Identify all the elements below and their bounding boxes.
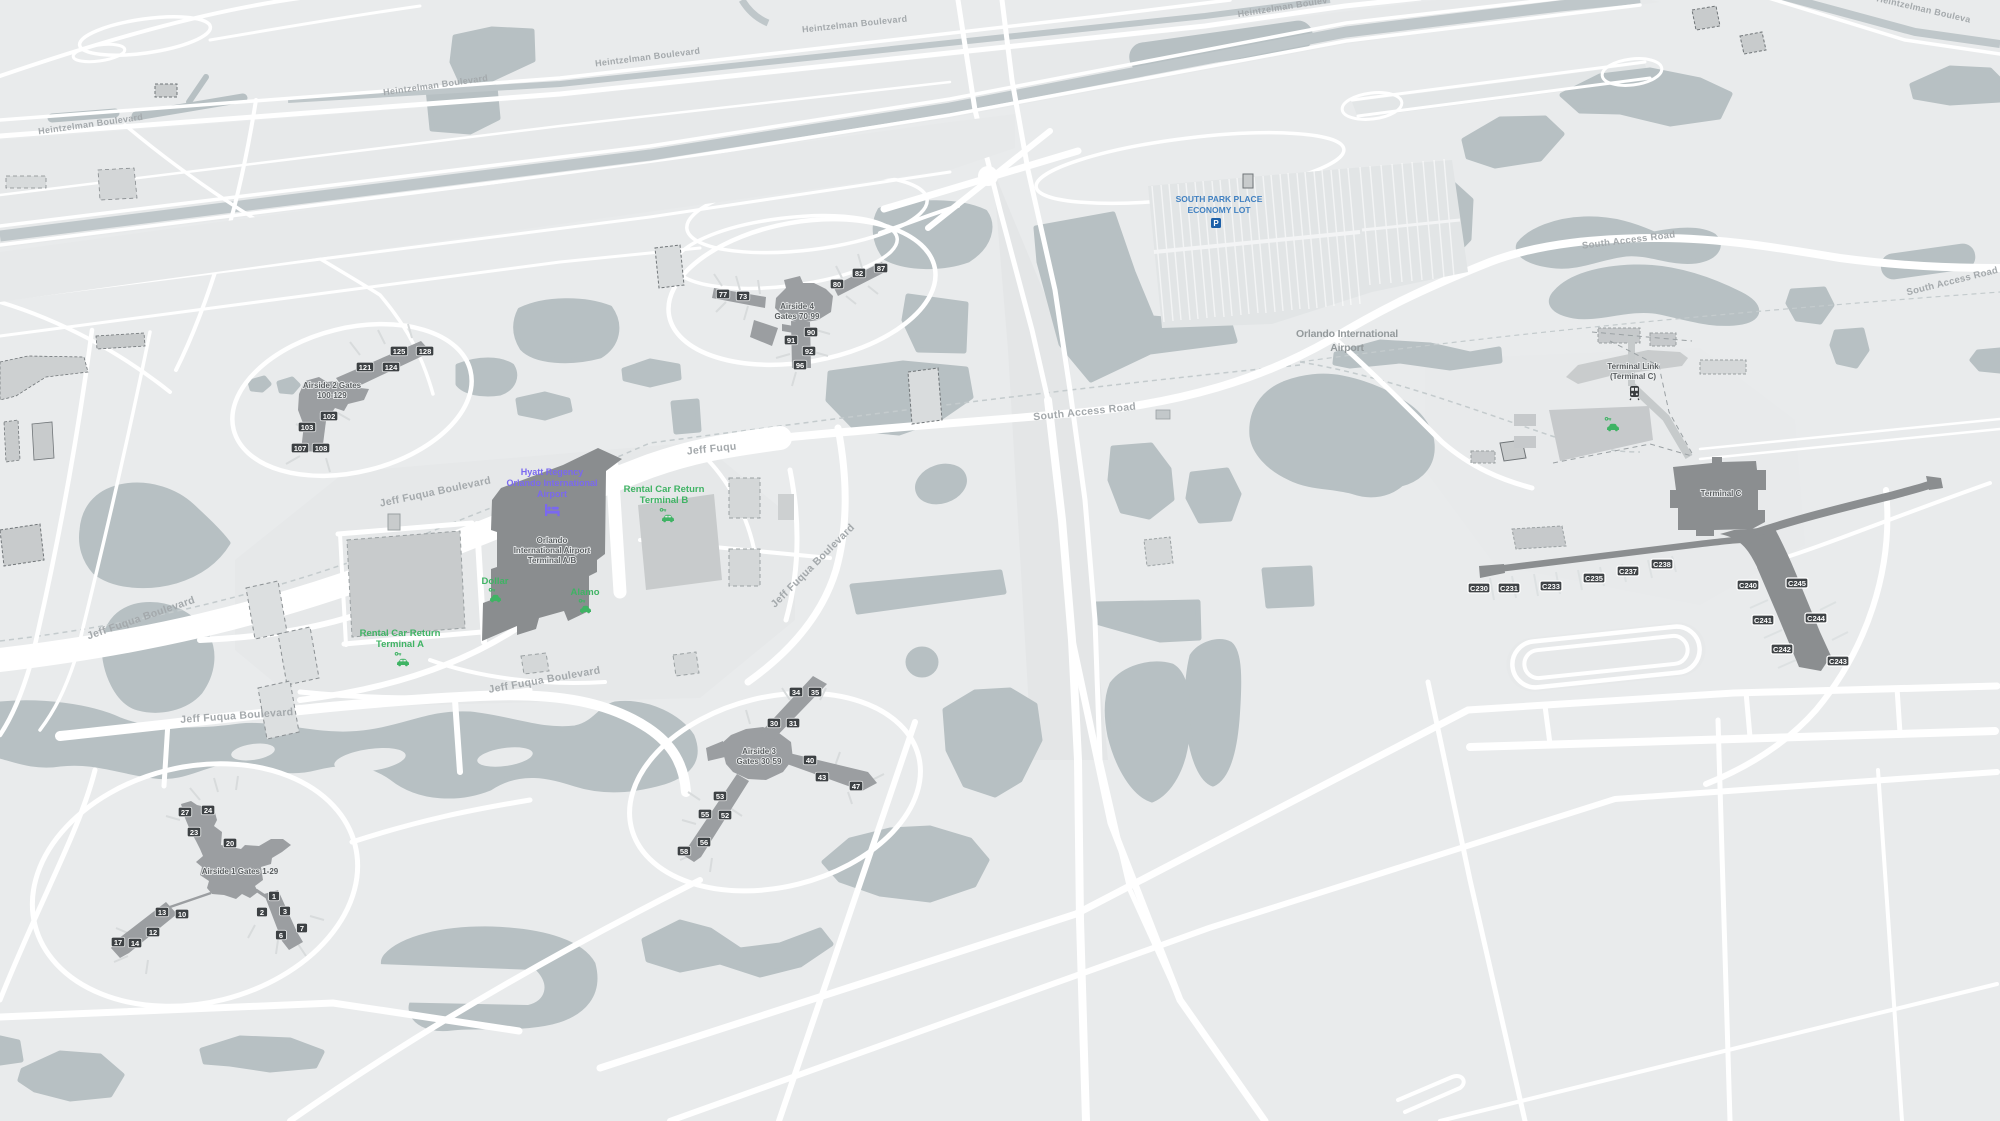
svg-text:Airside 3: Airside 3	[742, 747, 776, 756]
svg-text:Terminal Link: Terminal Link	[1607, 362, 1659, 371]
svg-text:Orlando International: Orlando International	[1296, 328, 1398, 340]
svg-text:Orlando: Orlando	[537, 536, 568, 545]
svg-text:C230: C230	[1470, 584, 1488, 593]
svg-text:C245: C245	[1788, 579, 1806, 588]
svg-text:P: P	[1213, 219, 1219, 228]
svg-text:53: 53	[716, 792, 724, 801]
svg-text:SOUTH PARK PLACE: SOUTH PARK PLACE	[1176, 194, 1263, 204]
svg-text:82: 82	[855, 269, 863, 278]
svg-text:6: 6	[279, 931, 283, 940]
svg-text:Airside 4: Airside 4	[780, 302, 814, 311]
svg-text:Airside 2 Gates: Airside 2 Gates	[303, 381, 362, 390]
svg-text:24: 24	[204, 806, 213, 815]
svg-text:Alamo: Alamo	[570, 587, 599, 598]
svg-text:58: 58	[680, 847, 688, 856]
svg-text:(Terminal C): (Terminal C)	[1610, 372, 1656, 381]
svg-text:90: 90	[807, 328, 815, 337]
svg-text:Rental Car Return: Rental Car Return	[624, 484, 705, 495]
svg-text:C240: C240	[1739, 581, 1757, 590]
svg-text:77: 77	[719, 290, 727, 299]
svg-text:80: 80	[833, 280, 841, 289]
svg-text:56: 56	[700, 838, 708, 847]
svg-text:Rental Car Return: Rental Car Return	[360, 628, 441, 639]
svg-text:3: 3	[283, 907, 287, 916]
svg-text:35: 35	[811, 688, 819, 697]
svg-text:Airside 1 Gates 1-29: Airside 1 Gates 1-29	[202, 867, 279, 876]
svg-text:Terminal C: Terminal C	[1701, 489, 1742, 498]
svg-text:10: 10	[178, 910, 186, 919]
svg-text:C238: C238	[1653, 560, 1671, 569]
svg-text:13: 13	[158, 908, 166, 917]
svg-text:73: 73	[739, 292, 747, 301]
svg-text:Gates 30-59: Gates 30-59	[737, 757, 782, 766]
svg-text:14: 14	[131, 939, 140, 948]
svg-text:102: 102	[323, 412, 336, 421]
svg-text:96: 96	[796, 361, 804, 370]
svg-text:International Airport: International Airport	[514, 546, 591, 555]
svg-text:Terminal A/B: Terminal A/B	[528, 556, 577, 565]
svg-text:2: 2	[260, 908, 264, 917]
svg-text:C243: C243	[1829, 657, 1847, 666]
svg-text:124: 124	[385, 363, 398, 372]
svg-text:7: 7	[300, 924, 304, 933]
svg-text:34: 34	[792, 688, 801, 697]
svg-text:C233: C233	[1542, 582, 1560, 591]
svg-text:31: 31	[789, 719, 797, 728]
svg-text:27: 27	[181, 808, 189, 817]
svg-text:Gates 70-99: Gates 70-99	[775, 312, 820, 321]
svg-text:1: 1	[272, 892, 276, 901]
svg-text:C241: C241	[1754, 616, 1772, 625]
svg-text:91: 91	[787, 336, 795, 345]
svg-text:23: 23	[190, 828, 198, 837]
svg-text:Airport: Airport	[1330, 342, 1364, 354]
svg-text:ECONOMY LOT: ECONOMY LOT	[1187, 205, 1251, 215]
svg-text:40: 40	[806, 756, 814, 765]
svg-text:C237: C237	[1619, 567, 1637, 576]
svg-text:43: 43	[818, 773, 826, 782]
svg-text:17: 17	[114, 938, 122, 947]
svg-text:Terminal B: Terminal B	[640, 495, 689, 506]
svg-text:C235: C235	[1585, 574, 1603, 583]
svg-text:20: 20	[226, 839, 234, 848]
svg-text:30: 30	[770, 719, 778, 728]
svg-text:C244: C244	[1807, 614, 1826, 623]
svg-text:Dollar: Dollar	[482, 576, 509, 587]
svg-text:52: 52	[721, 811, 729, 820]
svg-text:C231: C231	[1500, 584, 1518, 593]
svg-text:103: 103	[301, 423, 314, 432]
svg-text:100-129: 100-129	[317, 391, 347, 400]
svg-text:108: 108	[315, 444, 328, 453]
svg-text:92: 92	[805, 347, 813, 356]
svg-text:125: 125	[393, 347, 406, 356]
svg-text:Hyatt Regency: Hyatt Regency	[521, 467, 584, 477]
svg-text:12: 12	[149, 928, 157, 937]
svg-text:107: 107	[294, 444, 307, 453]
svg-text:55: 55	[701, 810, 709, 819]
svg-text:128: 128	[419, 347, 432, 356]
svg-text:47: 47	[852, 782, 860, 791]
svg-text:121: 121	[359, 363, 372, 372]
svg-text:C242: C242	[1773, 645, 1791, 654]
svg-text:Orlando International: Orlando International	[506, 478, 597, 488]
svg-text:Terminal A: Terminal A	[376, 639, 424, 650]
svg-text:87: 87	[877, 264, 885, 273]
svg-text:Airport: Airport	[537, 489, 567, 499]
